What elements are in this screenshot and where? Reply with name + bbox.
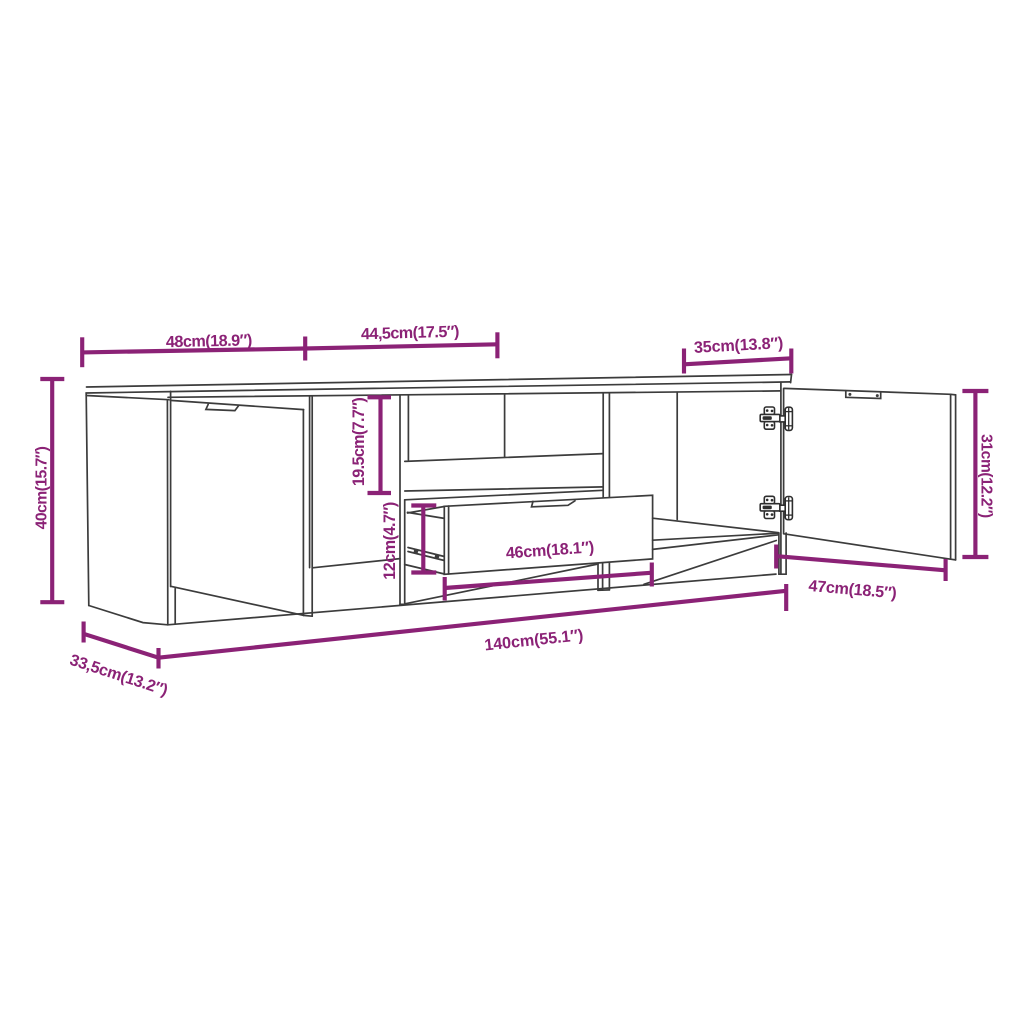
svg-text:40cm(15.7″): 40cm(15.7″) [33, 446, 50, 529]
svg-text:31cm(12.2″): 31cm(12.2″) [977, 434, 994, 518]
svg-text:48cm(18.9″): 48cm(18.9″) [166, 331, 252, 351]
svg-text:44,5cm(17.5″): 44,5cm(17.5″) [361, 323, 459, 344]
svg-text:19.5cm(7.7″): 19.5cm(7.7″) [350, 398, 368, 486]
svg-text:12cm(4.7″): 12cm(4.7″) [381, 502, 399, 580]
svg-text:140cm(55.1″): 140cm(55.1″) [484, 626, 585, 654]
svg-text:35cm(13.8″): 35cm(13.8″) [694, 334, 784, 357]
svg-text:47cm(18.5″): 47cm(18.5″) [808, 577, 897, 603]
